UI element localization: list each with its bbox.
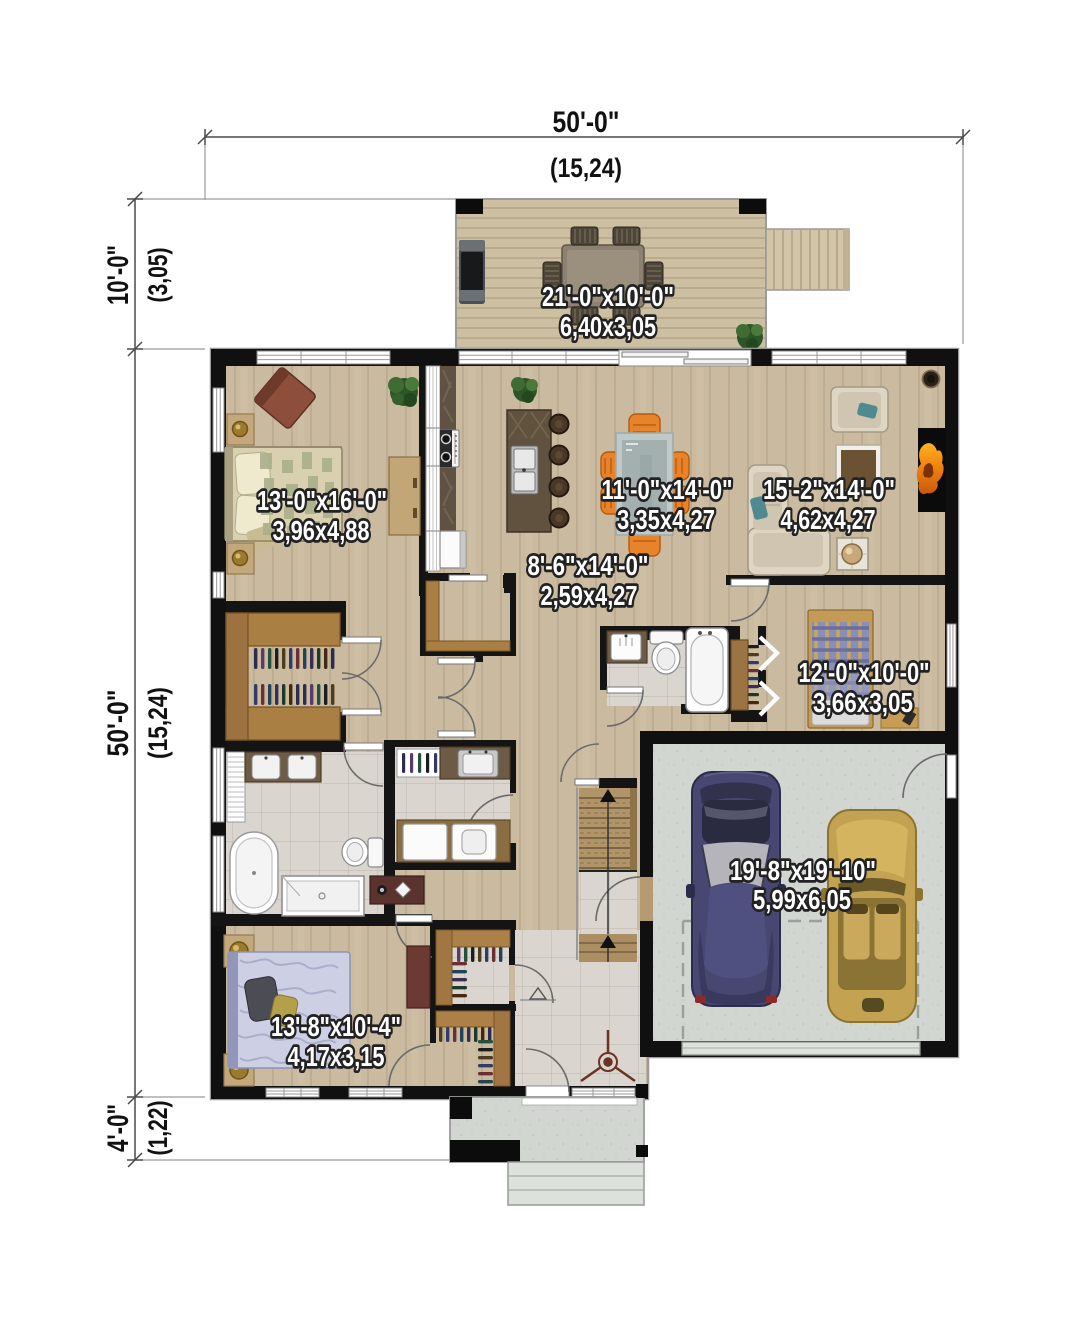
svg-text:50'-0": 50'-0" [102,690,135,757]
svg-text:13'-0"x16'-0": 13'-0"x16'-0" [257,485,387,516]
svg-text:4,17x3,15: 4,17x3,15 [288,1041,385,1072]
svg-text:10'-0": 10'-0" [102,245,135,305]
svg-text:11'-0"x14'-0": 11'-0"x14'-0" [602,474,733,505]
svg-text:2,59x4,27: 2,59x4,27 [541,580,638,611]
svg-text:(3,05): (3,05) [143,248,173,303]
svg-text:3,96x4,88: 3,96x4,88 [273,515,370,546]
svg-text:5,99x6,05: 5,99x6,05 [753,884,851,915]
svg-text:8'-6"x14'-0": 8'-6"x14'-0" [528,550,649,581]
svg-text:(15,24): (15,24) [143,687,173,759]
svg-text:4,62x4,27: 4,62x4,27 [781,504,876,535]
svg-text:(1,22): (1,22) [143,1101,173,1156]
svg-text:(15,24): (15,24) [550,153,622,183]
svg-text:6,40x3,05: 6,40x3,05 [560,311,656,342]
svg-text:4'-0": 4'-0" [102,1104,135,1152]
svg-text:3,66x3,05: 3,66x3,05 [813,687,913,718]
svg-text:19'-8"x19'-10": 19'-8"x19'-10" [730,855,876,886]
svg-text:50'-0": 50'-0" [553,106,620,139]
svg-text:21'-0"x10'-0": 21'-0"x10'-0" [542,281,674,312]
svg-text:15'-2"x14'-0": 15'-2"x14'-0" [763,474,895,505]
svg-text:12'-0"x10'-0": 12'-0"x10'-0" [799,657,930,688]
svg-text:13'-8"x10'-4": 13'-8"x10'-4" [271,1011,401,1042]
svg-text:3,35x4,27: 3,35x4,27 [617,504,715,535]
